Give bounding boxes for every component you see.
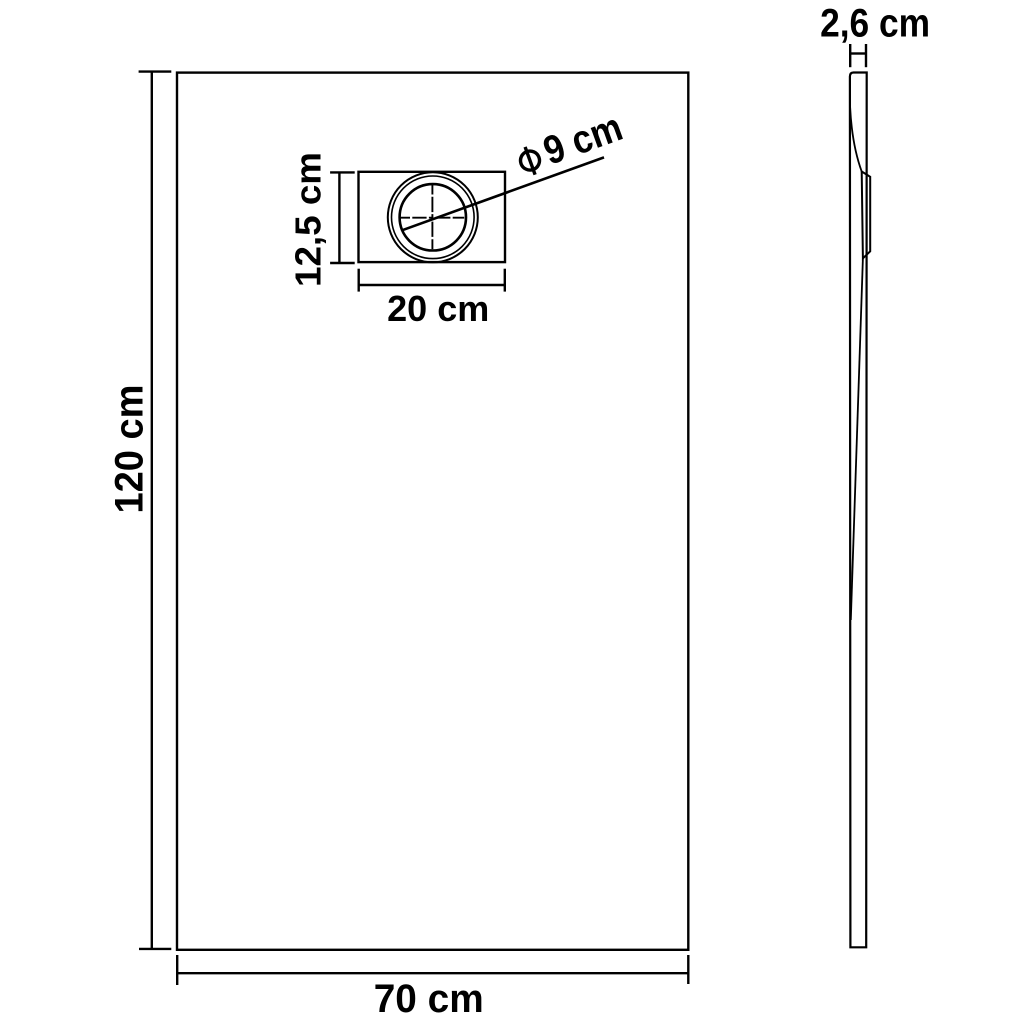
svg-text:12,5 cm: 12,5 cm <box>288 152 329 287</box>
svg-text:120 cm: 120 cm <box>108 385 152 514</box>
svg-text:2,6 cm: 2,6 cm <box>820 2 930 46</box>
svg-text:70 cm: 70 cm <box>374 977 484 1021</box>
svg-text:9 cm: 9 cm <box>538 105 628 173</box>
svg-text:20 cm: 20 cm <box>387 288 489 329</box>
